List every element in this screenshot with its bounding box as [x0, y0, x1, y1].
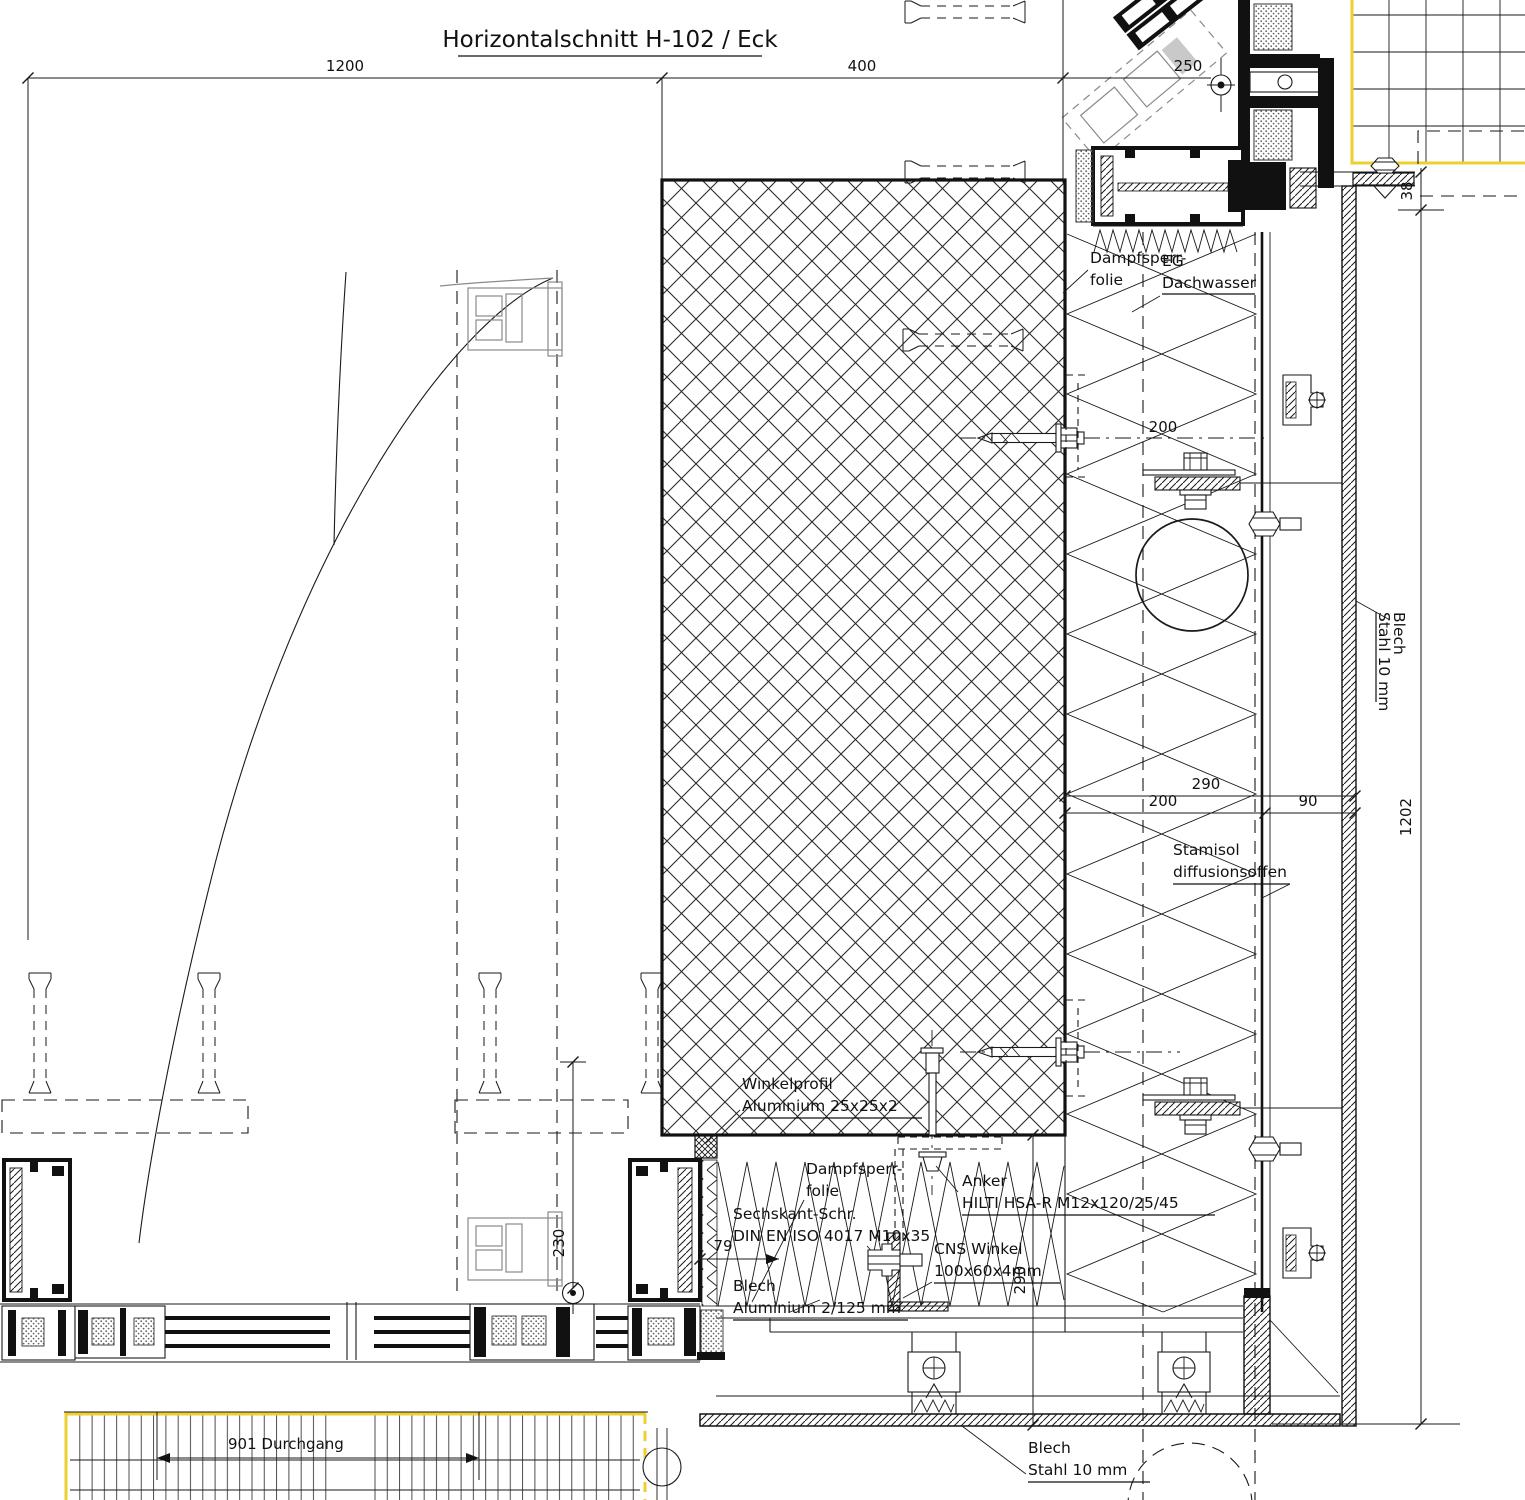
svg-text:folie: folie [806, 1182, 839, 1200]
anchor-bolt-box [908, 1352, 960, 1412]
label-blech-stahl-right: Blech Stahl 10 mm [1356, 601, 1408, 711]
corner-profile [1113, 0, 1215, 50]
label-blech-aluminium: Blech Aluminium 2/125 mm [733, 1277, 908, 1320]
hex-bolt-icon [1371, 158, 1399, 173]
countersunk-screw-icon [905, 1, 1025, 23]
door-swing-arc [139, 278, 553, 1243]
hex-bolt-icon [1249, 1137, 1301, 1161]
svg-text:diffusionsoffen: diffusionsoffen [1173, 863, 1287, 881]
svg-text:Anker: Anker [962, 1172, 1007, 1190]
svg-text:Stamisol: Stamisol [1173, 841, 1240, 859]
svg-text:Aluminium 25x25x2: Aluminium 25x25x2 [742, 1097, 898, 1115]
dim-90: 90 [1298, 792, 1317, 810]
label-sechskant: Sechskant-Schr. DIN EN ISO 4017 M10x35 [733, 1205, 930, 1258]
grating-yellow-border [1352, 0, 1525, 163]
label-blech-stahl-bottom: Blech Stahl 10 mm [962, 1426, 1150, 1482]
label-cns-winkel: CNS Winkel 100x60x4mm [903, 1240, 1060, 1298]
countersunk-screw-icon [479, 973, 501, 1093]
svg-text:HILTI HSA-R M12x120/25/45: HILTI HSA-R M12x120/25/45 [962, 1194, 1179, 1212]
dim-1202: 1202 [1397, 798, 1415, 836]
bolt-plate-cluster [1143, 1078, 1342, 1134]
dim-400: 400 [848, 57, 877, 75]
countersunk-screw-icon [641, 973, 663, 1093]
svg-text:100x60x4mm: 100x60x4mm [934, 1262, 1042, 1280]
label-stamisol: Stamisol diffusionsoffen [1173, 841, 1290, 898]
countersunk-screw-icon [29, 973, 51, 1093]
steel-box-profile [1076, 148, 1243, 226]
dim-200-upper: 200 [1149, 418, 1178, 436]
pipe-sleeve-circle [1136, 519, 1248, 631]
membrane-fixings [1143, 375, 1342, 1278]
round-column [643, 1448, 681, 1486]
svg-text:Dampfsperr-: Dampfsperr- [806, 1160, 902, 1178]
dim-79: 79 [713, 1237, 732, 1255]
svg-text:EG: EG [1162, 252, 1184, 270]
frame-profiles [2, 1304, 700, 1360]
fixing-plate [1283, 375, 1326, 425]
break-symbol [347, 1302, 356, 1360]
countersunk-screw-icon [198, 973, 220, 1093]
facade-mullion-assembly [1062, 0, 1334, 226]
dim-290: 290 [1192, 775, 1221, 793]
steel-base-plate [700, 1414, 1340, 1426]
svg-text:Stahl 10 mm: Stahl 10 mm [1375, 612, 1393, 711]
svg-text:folie: folie [1090, 271, 1123, 289]
door-section [0, 1160, 725, 1362]
anchor-bolt-box [1158, 1352, 1210, 1412]
dim-38: 38 [1398, 181, 1416, 200]
dim-200-lower: 200 [1149, 792, 1178, 810]
svg-text:Winkelprofil: Winkelprofil [742, 1075, 833, 1093]
right-jamb-box [630, 1160, 700, 1300]
svg-text:Blech: Blech [733, 1277, 776, 1295]
horizontal-section-drawing: 1200 400 250 38 1202 200 290 200 90 290 … [0, 0, 1525, 1500]
dim-250: 250 [1174, 57, 1203, 75]
dim-1200: 1200 [326, 57, 364, 75]
hidden-pipe-circle [1128, 1443, 1252, 1500]
dim-230: 230 [550, 1229, 568, 1258]
svg-text:Blech: Blech [1028, 1439, 1071, 1457]
left-jamb-box [4, 1160, 70, 1300]
svg-text:Dachwasser: Dachwasser [1162, 274, 1257, 292]
fixing-plate [1283, 1228, 1326, 1278]
svg-text:Stahl 10 mm: Stahl 10 mm [1028, 1461, 1127, 1479]
dim-901-durchgang: 901 Durchgang [228, 1435, 344, 1453]
bolt-plate-cluster [1143, 453, 1342, 509]
hex-bolt-icon [1249, 512, 1301, 536]
svg-text:Sechskant-Schr.: Sechskant-Schr. [733, 1205, 857, 1223]
page-title: Horizontalschnitt H-102 / Eck [442, 27, 778, 53]
hidden-structures-left [2, 78, 663, 1295]
hidden-profile-top [440, 278, 562, 356]
drawing-sheet: 1200 400 250 38 1202 200 290 200 90 290 … [0, 0, 1525, 1500]
hidden-profile-bottom [468, 1212, 562, 1286]
svg-text:CNS Winkel: CNS Winkel [934, 1240, 1023, 1258]
svg-text:DIN EN ISO 4017 M10x35: DIN EN ISO 4017 M10x35 [733, 1227, 930, 1245]
